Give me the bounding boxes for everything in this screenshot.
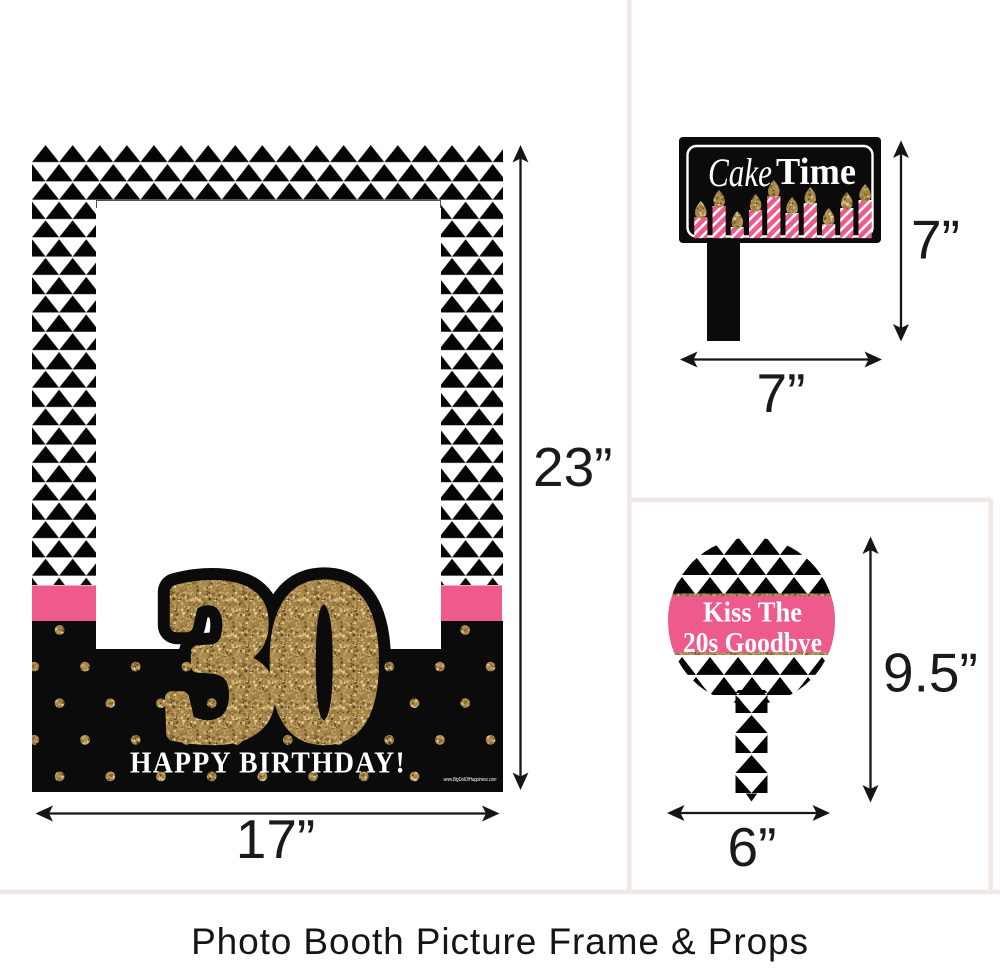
svg-text:9.5”: 9.5” <box>883 642 978 704</box>
svg-text:Photo Booth Picture Frame & Pr: Photo Booth Picture Frame & Props <box>191 921 809 962</box>
svg-text:7”: 7” <box>911 209 960 271</box>
svg-text:Cake: Cake <box>708 150 772 195</box>
svg-text:Kiss The: Kiss The <box>703 597 802 629</box>
svg-text:7”: 7” <box>757 362 806 424</box>
svg-text:17”: 17” <box>236 808 316 870</box>
svg-text:20s Goodbye: 20s Goodbye <box>683 627 822 659</box>
svg-text:www.BigDotOfHappiness.com: www.BigDotOfHappiness.com <box>444 777 497 783</box>
svg-text:HAPPY BIRTHDAY!: HAPPY BIRTHDAY! <box>130 745 406 780</box>
svg-text:Time: Time <box>776 151 856 193</box>
svg-text:6”: 6” <box>728 816 777 878</box>
svg-text:23”: 23” <box>533 436 613 498</box>
